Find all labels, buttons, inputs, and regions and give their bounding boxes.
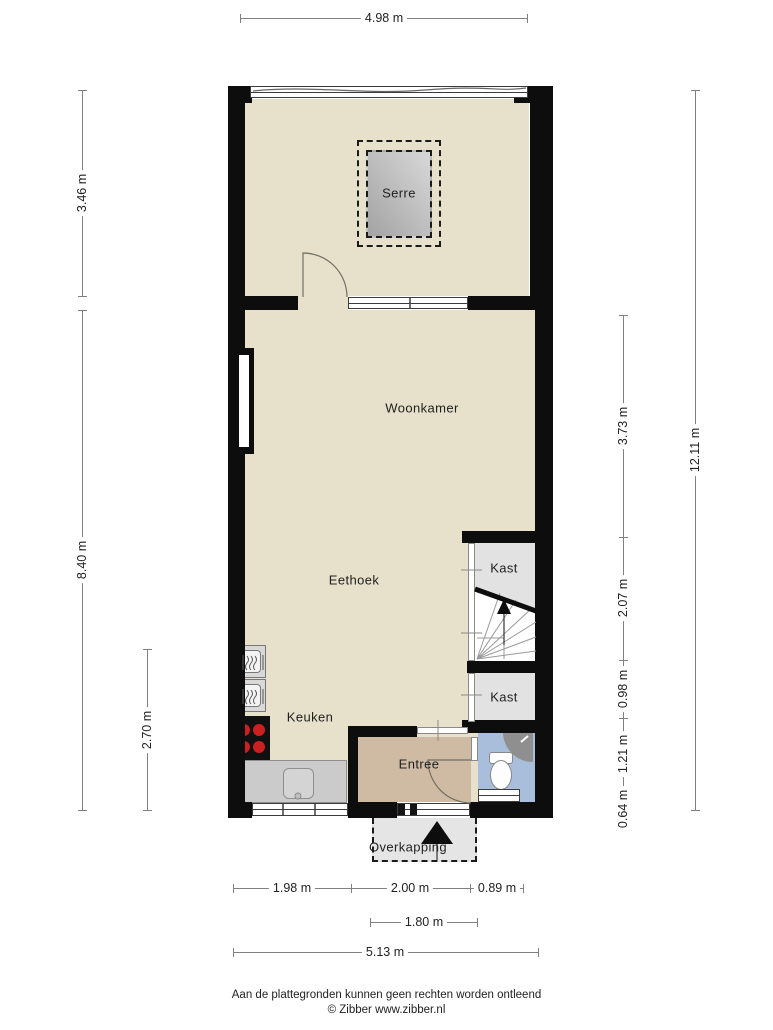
room-label-eethoek: Eethoek bbox=[329, 573, 380, 588]
room-label-keuken: Keuken bbox=[287, 710, 334, 725]
dim-kitchen-width: 1.98 m bbox=[269, 880, 315, 896]
wall-entree-top bbox=[348, 726, 417, 737]
dim-total-height: 12.11 m bbox=[687, 424, 703, 476]
kitchen-window bbox=[252, 803, 348, 816]
wall-serre-bottom-left bbox=[245, 296, 298, 310]
wall-stairs-bottom bbox=[467, 661, 535, 673]
room-label-kast2: Kast bbox=[490, 690, 518, 705]
footer: Aan de plattegronden kunnen geen rechten… bbox=[0, 988, 773, 1018]
footer-disclaimer: Aan de plattegronden kunnen geen rechten… bbox=[0, 988, 773, 1003]
partition-entree bbox=[417, 727, 468, 734]
wall-serre-bottom-right bbox=[468, 296, 535, 310]
wall-closet-bottom bbox=[462, 720, 553, 733]
partition-wc bbox=[471, 737, 478, 761]
dim-total-width: 5.13 m bbox=[362, 944, 408, 960]
wall-bottom-right bbox=[470, 802, 553, 818]
partition-closet bbox=[468, 673, 475, 722]
toilet-bowl-icon bbox=[490, 760, 512, 790]
dim-right-width: 0.89 m bbox=[474, 880, 520, 896]
dim-kitchen-height: 2.70 m bbox=[139, 707, 155, 753]
dim-top-width: 4.98 m bbox=[361, 10, 407, 26]
wall-right bbox=[535, 298, 553, 818]
dim-door-width: 1.80 m bbox=[401, 914, 447, 930]
room-label-woonkamer: Woonkamer bbox=[385, 401, 458, 416]
wall-bottom-left bbox=[228, 802, 252, 818]
dim-main-height: 8.40 m bbox=[74, 537, 90, 583]
wc-window bbox=[478, 789, 520, 802]
dim-entree-width: 2.00 m bbox=[387, 880, 433, 896]
sink bbox=[283, 768, 314, 799]
serre-front-window bbox=[250, 86, 528, 98]
living-serre-window bbox=[348, 297, 468, 309]
dim-right-woonkamer: 3.73 m bbox=[615, 403, 631, 449]
chimney-niche bbox=[239, 355, 249, 447]
wall-closet-top bbox=[462, 531, 535, 543]
dim-right-porch: 0.64 m bbox=[615, 786, 631, 832]
room-label-entree: Entree bbox=[399, 757, 440, 772]
room-label-serre: Serre bbox=[382, 186, 416, 201]
floor-plan: Serre Woonkamer Eethoek Keuken Kast Kast… bbox=[0, 0, 773, 1030]
door-opening-floor bbox=[298, 296, 348, 310]
wall-entree-left bbox=[348, 726, 358, 818]
dim-right-entree: 1.21 m bbox=[615, 731, 631, 777]
dim-right-kast: 0.98 m bbox=[615, 666, 631, 712]
dim-serre-height: 3.46 m bbox=[74, 170, 90, 216]
dim-right-stairs: 2.07 m bbox=[615, 575, 631, 621]
partition-stairs bbox=[468, 543, 475, 661]
room-label-overkapping: Overkapping bbox=[369, 840, 447, 855]
wall-top-left bbox=[228, 86, 252, 103]
front-door bbox=[397, 803, 470, 816]
wall-serre-right bbox=[530, 86, 553, 298]
room-label-kast1: Kast bbox=[490, 561, 518, 576]
footer-credit: © Zibber www.zibber.nl bbox=[0, 1003, 773, 1018]
